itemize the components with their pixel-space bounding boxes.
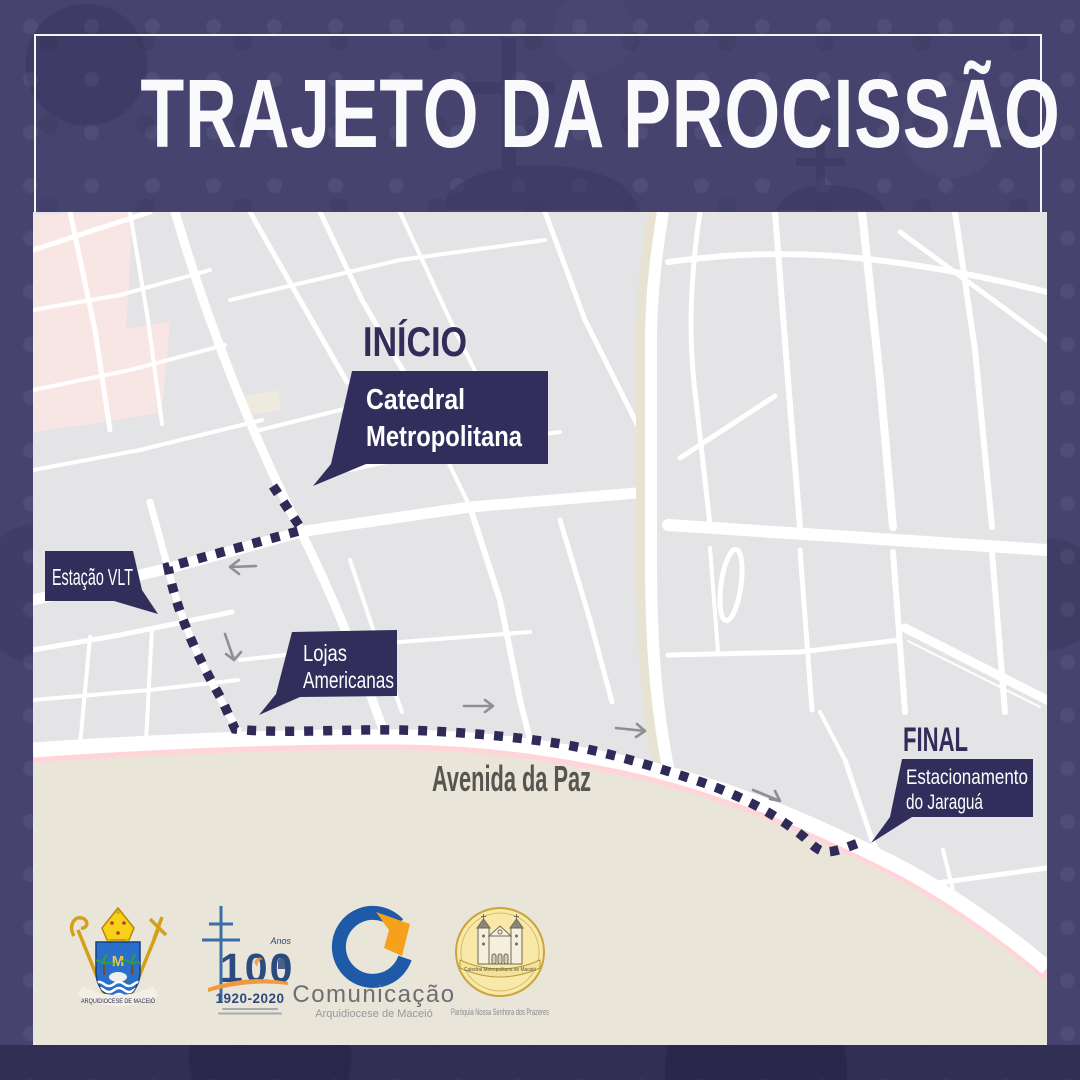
centenario-years: 1920-2020	[215, 991, 284, 1006]
estacionamento-line1: Estacionamento	[906, 766, 1028, 789]
centenario-anos: Anos	[269, 936, 291, 946]
cathedral-callout-line1: Catedral	[366, 384, 465, 416]
start-label: INÍCIO	[363, 318, 467, 365]
banner-text: ARQUIDIOCESE DE MACEIÓ	[81, 996, 155, 1005]
end-label: FINAL	[903, 721, 968, 759]
lojas-americanas-line1: Lojas	[303, 640, 347, 666]
vlt-station-callout-label: Estação VLT	[52, 564, 133, 590]
comunicacao-subtitle: Arquidiocese de Maceió	[315, 1008, 432, 1020]
paroquia-caption: Paróquia Nossa Senhora dos Prazeres	[451, 1007, 549, 1018]
emblem-ribbon-text: Catedral Metropolitana de Maceió	[464, 967, 536, 973]
estacionamento-line2: do Jaraguá	[906, 791, 983, 814]
comunicacao-title: Comunicação	[292, 981, 455, 1008]
procession-route-poster: TRAJETO DA PROCISSÃO	[0, 0, 1080, 1080]
route-map: INÍCIO Catedral Metropolitana Estação VL…	[0, 0, 1080, 1080]
cathedral-callout-line2: Metropolitana	[366, 421, 523, 453]
avenue-label: Avenida da Paz	[432, 758, 591, 799]
lojas-americanas-line2: Americanas	[303, 667, 394, 693]
